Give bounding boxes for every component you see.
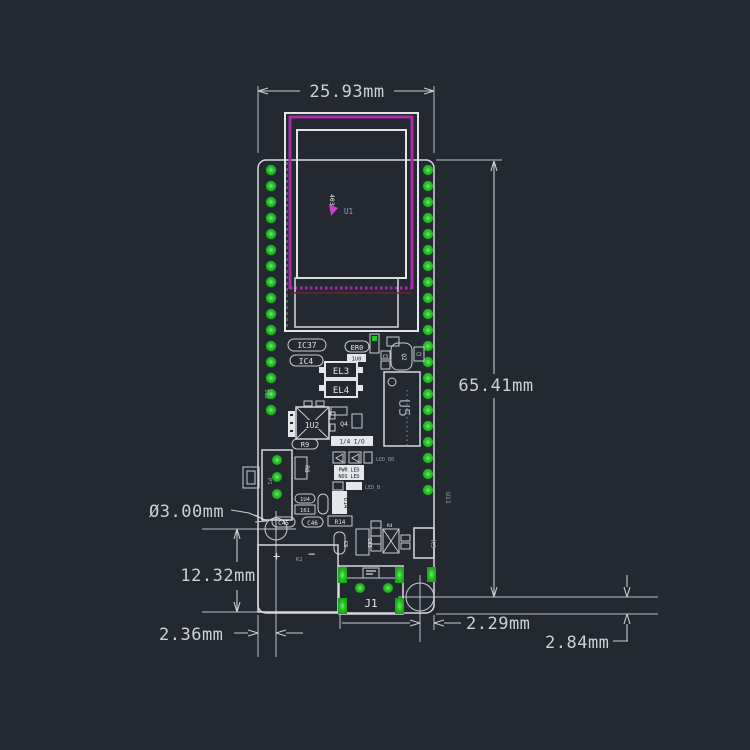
pin-pad [266,261,276,271]
refdes-c5: C5 [383,354,389,360]
pin-pad [266,197,276,207]
label-pwr-led: PWR LED [338,468,359,474]
k2-minus-mark: − [308,547,315,561]
refdes-r4: R4 [387,523,393,529]
refdes-u1: U1 [344,207,353,216]
refdes-r8: R8 [303,465,310,473]
pin-pad [423,485,433,495]
refdes-u14: U14 [342,498,349,509]
pin-pad [423,181,433,191]
origin-marker-icon [329,204,338,216]
label-161: 161 [300,508,310,514]
pin-pad [266,341,276,351]
pin-pad [423,261,433,271]
led-cluster: LED_B0 PWR LED NOS LED LED_B [333,452,394,491]
refdes-k3: K3 [429,540,437,548]
refdes-c8: C8 [342,541,348,548]
refdes-j1: J1 [364,597,377,610]
refdes-i12: I12 [263,389,269,399]
dim-hole-right-y: 2.84mm [398,575,658,653]
dim-board-length: 65.41mm [436,160,534,597]
pin-pad [266,357,276,367]
pin-pad [423,325,433,335]
pin-pad [266,165,276,175]
refdes-er0: ER0 [351,344,364,352]
pin-pad [266,213,276,223]
refdes-c46: C46 [307,520,318,527]
refdes-ic37: IC37 [297,341,316,350]
display-cover-outline [290,117,412,289]
pin-pad [423,373,433,383]
refdes-ic4: IC4 [299,357,314,366]
refdes-r9: R9 [301,441,309,449]
pin-pad [266,373,276,383]
refdes-u11: U11 [444,492,452,504]
connector-k3: K3 [414,528,437,558]
pin-pad [266,293,276,303]
refdes-el4: EL4 [333,386,349,396]
pin-pad [266,277,276,287]
k2-plus-mark: + [273,549,280,563]
pin-pad [423,197,433,207]
board-group: 403 U1 IC37 IC4 ER0 1U0 Q2 [243,113,452,614]
pin-pads-left [266,165,276,415]
label-led-b: LED_B [365,485,380,491]
button-switch: P1 [243,450,292,520]
refdes-el3: EL3 [333,367,349,377]
dim-hole-left-x: 2.36mm [159,541,303,657]
refdes-c45: C45 [278,520,289,527]
refdes-p1: P1 [266,478,272,485]
pin-pad [423,245,433,255]
dim-text-hole-diameter: Ø3.00mm [149,502,224,522]
pin-pad [266,181,276,191]
label-led-b0: LED_B0 [376,457,394,463]
pin-pad [266,405,276,415]
pin-pad [423,165,433,175]
dim-hole-left-y: 12.32mm [180,529,296,612]
refdes-r14: R14 [335,519,346,526]
pin-pad [423,213,433,223]
dim-text-hole-right-x: 2.29mm [466,614,530,634]
refdes-q2: Q2 [400,353,407,361]
pin-pad [423,309,433,319]
pin-pad [423,229,433,239]
flash-chip-u5: U5 [384,372,420,446]
pin-pad [423,421,433,431]
pin-pad [423,405,433,415]
pin-pad [423,277,433,287]
pin-pad [266,309,276,319]
refdes-u5: U5 [395,399,413,417]
label-nos-led: NOS LED [338,474,359,480]
pin-pad [423,453,433,463]
pin-pad [423,437,433,447]
dim-text-hole-right-y: 2.84mm [545,633,609,653]
battery-connector-k2: + − K2 [258,545,338,612]
pin-pad [423,469,433,479]
refdes-c2: C2 [416,352,422,358]
pin-pad [423,389,433,399]
label-io: 1/4 I/O [339,439,365,446]
display-active-area [297,130,406,278]
pin-pad [266,229,276,239]
pin-pad [266,245,276,255]
refdes-1u4: 1U4 [300,497,311,503]
pin-pads-right [423,165,433,495]
regulator-1u2: 1U2 [288,401,335,439]
el-capacitors: EL3 EL4 [319,362,363,397]
refdes-1u2: 1U2 [305,421,320,430]
display-flex-area [295,278,398,327]
pin-pad [266,325,276,335]
pcb-dimension-drawing: 25.93mm 65.41mm Ø3.00mm 12.32mm 2.36mm [0,0,750,750]
display-module: 403 U1 [285,113,418,331]
dim-text-board-length: 65.41mm [458,376,533,396]
dim-hole-diameter: Ø3.00mm [149,502,267,522]
refdes-k2: K2 [296,557,303,563]
marker-label: 403 [328,194,336,206]
cad-canvas[interactable]: 25.93mm 65.41mm Ø3.00mm 12.32mm 2.36mm [0,0,750,750]
dim-text-board-width: 25.93mm [309,82,384,102]
refdes-q4: Q4 [340,420,348,428]
dim-text-hole-left-y: 12.32mm [180,566,255,586]
dim-text-hole-left-x: 2.36mm [159,625,223,645]
usb-connector-j1: J1 [338,566,436,614]
pin-pad [423,293,433,303]
